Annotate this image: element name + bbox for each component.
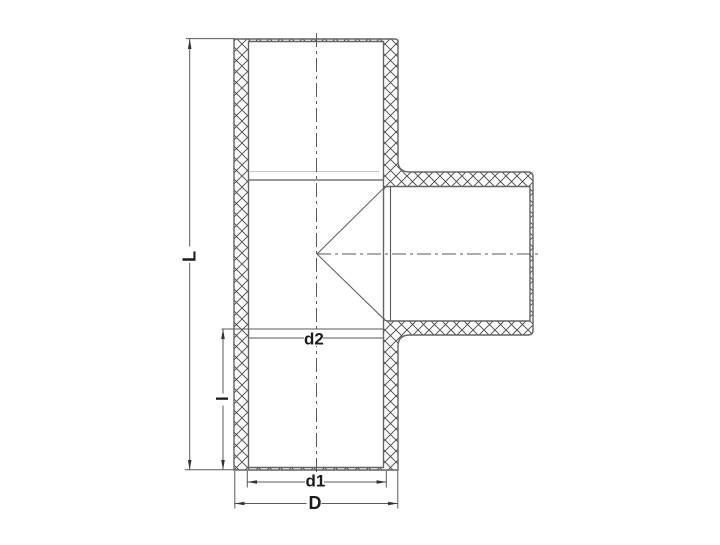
svg-text:d2: d2: [304, 330, 324, 349]
svg-text:l: l: [213, 396, 232, 401]
svg-text:D: D: [309, 493, 322, 513]
svg-text:L: L: [180, 251, 200, 262]
svg-text:d1: d1: [306, 472, 326, 491]
